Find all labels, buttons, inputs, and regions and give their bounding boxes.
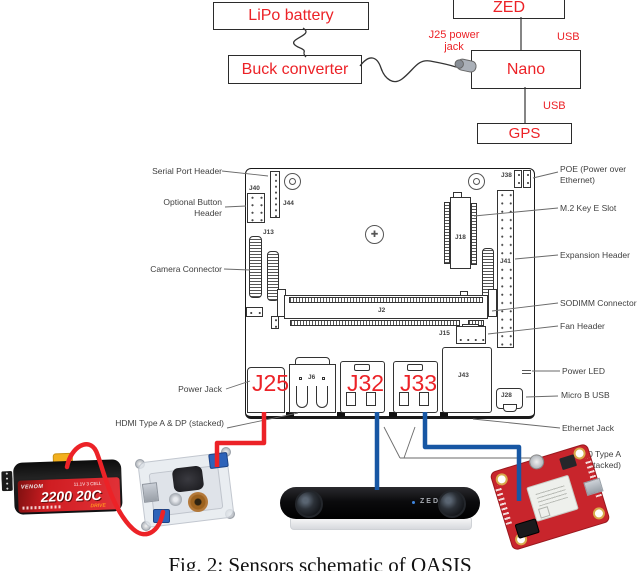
nano-box: Nano [471, 50, 581, 89]
gps-module [526, 475, 579, 522]
gps-box: GPS [477, 123, 572, 144]
sodimm-latch-right [488, 289, 497, 317]
j44-header [270, 171, 280, 218]
hdmi-dot [299, 377, 302, 380]
usb-output-port [142, 482, 159, 503]
sodimm-contacts-top [289, 297, 483, 303]
label-power-led: Power LED [562, 366, 605, 377]
m2-edge-right [471, 203, 477, 265]
label-sodimm-connector: SODIMM Connector [560, 298, 637, 309]
zed-box-label: ZED [493, 0, 525, 17]
battery-spec: 11.1V 3 CELL [74, 481, 102, 487]
usb-bottom-label: USB [543, 100, 566, 112]
label-hdmi-stacked: HDMI Type A & DP (stacked) [112, 418, 224, 429]
gps-usb-connector [515, 518, 540, 539]
module-logo [538, 506, 550, 518]
j40-header [247, 193, 265, 223]
battery-label-band: VENOM 11.1V 3 CELL 2200 20C DRIVE [18, 477, 121, 513]
battery-wire-squiggle [294, 28, 306, 57]
screw-hole-icon [284, 173, 301, 190]
zed-camera-photo: ZED [278, 484, 482, 530]
label-optional-button-header: Optional Button Header [150, 197, 222, 218]
fan-header-j15 [456, 326, 486, 344]
camera-connector-1 [249, 236, 262, 298]
ref-j43: J43 [458, 372, 469, 379]
zed-left-lens [295, 490, 323, 518]
output-terminal-block [153, 509, 170, 523]
battery-fine-print [22, 505, 62, 509]
usb-top-label: USB [557, 31, 580, 43]
label-ethernet-jack: Ethernet Jack [562, 423, 614, 434]
label-serial-port-header: Serial Port Header [102, 166, 222, 177]
label-m2-key-e: M.2 Key E Slot [560, 203, 616, 214]
battery-series: DRIVE [90, 503, 105, 510]
figure-page: LiPo battery Buck converter ZED Nano GPS… [0, 0, 640, 571]
ethernet-jack-j43 [442, 347, 492, 413]
m2-module-j18 [450, 197, 471, 269]
gps-pcb [489, 443, 611, 551]
port-label-j33: J33 [400, 370, 437, 397]
input-terminal-block [208, 452, 229, 469]
mounting-hole [591, 506, 606, 521]
solder-pads [495, 485, 512, 525]
j25-power-jack-label: J25 power jack [420, 29, 488, 53]
mounting-hole [494, 472, 509, 487]
gps-board-photo [487, 446, 622, 546]
ref-j40: J40 [249, 185, 260, 192]
ref-j13: J13 [263, 229, 274, 236]
ref-j38: J38 [501, 172, 512, 179]
buck-converter-box: Buck converter [228, 55, 362, 84]
ref-j28: J28 [501, 392, 512, 399]
screw-hole-icon [468, 173, 485, 190]
toroid-inductor [188, 492, 208, 512]
ref-j6: J6 [308, 374, 315, 381]
clover-screw-icon: ✚ [365, 225, 384, 244]
port-label-j25: J25 [252, 370, 289, 397]
zed-logo-text: ZED [420, 498, 440, 505]
figure-caption: Fig. 2: Sensors schematic of OASIS [0, 553, 640, 571]
hdmi-port-upper [296, 386, 308, 408]
micro-usb-port [503, 404, 517, 412]
ref-j15: J15 [439, 330, 450, 337]
j38-header-b [523, 170, 531, 188]
ref-j44: J44 [283, 200, 294, 207]
zed-box: ZED [453, 0, 565, 19]
sodimm-key-tab [460, 291, 468, 296]
label-poe: POE (Power over Ethernet) [560, 164, 638, 185]
label-micro-b-usb: Micro B USB [561, 390, 610, 401]
ref-j2: J2 [378, 307, 385, 314]
label-camera-connector: Camera Connector [102, 264, 222, 275]
lipo-battery-box: LiPo battery [213, 2, 369, 30]
gps-box-label: GPS [509, 125, 541, 142]
zed-right-lens [438, 490, 466, 518]
ref-j18: J18 [455, 234, 466, 241]
zed-led-icon [412, 501, 415, 504]
label-power-jack: Power Jack [122, 384, 222, 395]
sodimm-contacts-bottom-a [290, 320, 460, 326]
power-led-icon [522, 368, 531, 374]
capacitor [169, 493, 182, 506]
balance-connector [1, 471, 13, 491]
label-expansion-header: Expansion Header [560, 250, 630, 261]
coin-battery [527, 453, 546, 472]
nano-box-label: Nano [507, 61, 545, 79]
ic-chip [559, 454, 577, 470]
lipo-battery-label: LiPo battery [248, 7, 333, 25]
expansion-header-j41 [497, 190, 514, 348]
buck-to-jack-wire [360, 58, 456, 82]
m2-tab [453, 192, 462, 198]
small-header [271, 316, 279, 329]
hdmi-port-lower [316, 386, 328, 408]
buck-converter-photo [133, 437, 237, 535]
port-label-j32: J32 [347, 370, 384, 397]
hdmi-dot [322, 377, 325, 380]
buck-converter-label: Buck converter [242, 61, 349, 79]
label-fan-header: Fan Header [560, 321, 605, 332]
module-print [535, 484, 568, 506]
two-pin-header [246, 307, 263, 317]
j38-header-a [514, 170, 522, 188]
ref-j41: J41 [499, 258, 512, 265]
heatsink [172, 465, 205, 492]
lipo-battery-photo: VENOM 11.1V 3 CELL 2200 20C DRIVE [1, 451, 136, 534]
